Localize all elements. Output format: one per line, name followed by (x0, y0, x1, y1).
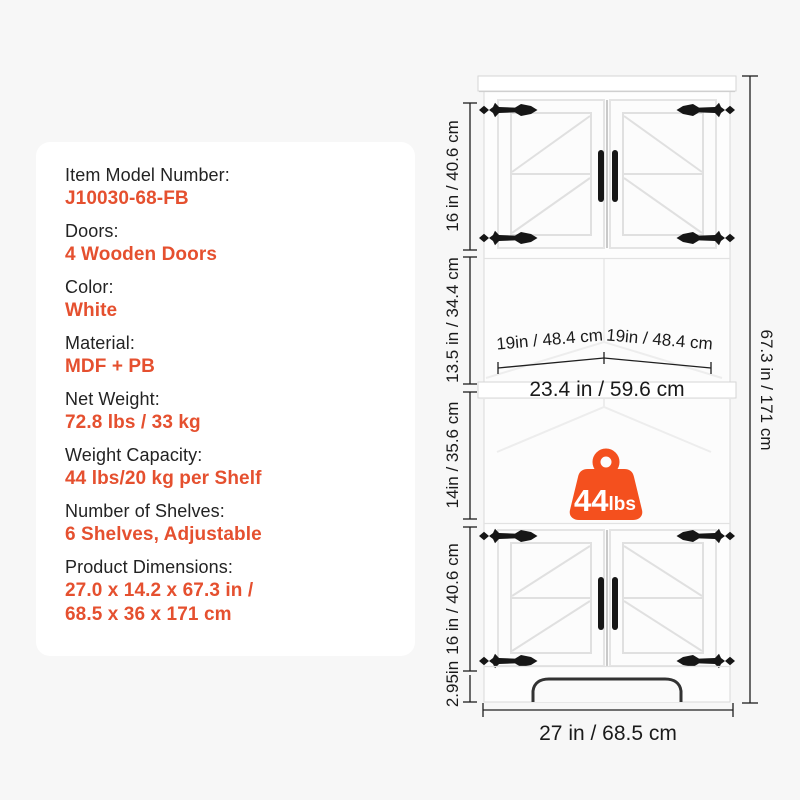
dim-label-base-height: 2.95in (443, 661, 462, 707)
spec-value: 44 lbs/20 kg per Shelf (65, 467, 395, 491)
cabinet-top-board (478, 76, 736, 91)
dim-label-overall-width: 27 in / 68.5 cm (539, 722, 677, 745)
dim-left-sections: 16 in / 40.6 cm 13.5 in / 34.4 cm 14in /… (443, 103, 477, 707)
dim-label-shelf-front-width: 23.4 in / 59.6 cm (529, 378, 684, 401)
spec-group-doors: Doors: 4 Wooden Doors (65, 219, 395, 267)
dim-total-height: 67.3 in / 171 cm (742, 76, 776, 703)
spec-card: Item Model Number: J10030-68-FB Doors: 4… (36, 142, 415, 656)
spec-group-dimensions: Product Dimensions: 27.0 x 14.2 x 67.3 i… (65, 555, 395, 627)
cabinet-dimension-diagram: 44lbs 16 in / 40.6 cm (430, 55, 800, 755)
spec-label: Doors: (65, 219, 395, 243)
spec-group-net-weight: Net Weight: 72.8 lbs / 33 kg (65, 387, 395, 435)
spec-value: White (65, 299, 395, 323)
spec-value: 4 Wooden Doors (65, 243, 395, 267)
dim-label-fourth-section: 16 in / 40.6 cm (443, 543, 462, 655)
door-handle (612, 150, 618, 202)
spec-label: Net Weight: (65, 387, 395, 411)
spec-value: 27.0 x 14.2 x 67.3 in / (65, 579, 395, 603)
spec-value: MDF + PB (65, 355, 395, 379)
lower-doors (479, 524, 735, 669)
spec-group-model: Item Model Number: J10030-68-FB (65, 163, 395, 211)
spec-group-shelves: Number of Shelves: 6 Shelves, Adjustable (65, 499, 395, 547)
dim-overall-width: 27 in / 68.5 cm (483, 703, 733, 745)
door-handle (598, 577, 604, 630)
dim-label-top-section: 16 in / 40.6 cm (443, 120, 462, 232)
spec-value: 6 Shelves, Adjustable (65, 523, 395, 547)
spec-value-line2: 68.5 x 36 x 171 cm (65, 603, 395, 627)
spec-label: Weight Capacity: (65, 443, 395, 467)
door-handle (612, 577, 618, 630)
dim-label-total-height: 67.3 in / 171 cm (757, 330, 776, 451)
product-spec-infographic: Item Model Number: J10030-68-FB Doors: 4… (0, 0, 800, 800)
spec-label: Product Dimensions: (65, 555, 395, 579)
spec-label: Material: (65, 331, 395, 355)
open-shelf-upper (486, 258, 728, 382)
upper-doors (479, 100, 735, 248)
spec-group-color: Color: White (65, 275, 395, 323)
page: { "colors": { "background": "#f7f7f7", "… (0, 0, 800, 800)
spec-label: Color: (65, 275, 395, 299)
spec-group-material: Material: MDF + PB (65, 331, 395, 379)
spec-value: J10030-68-FB (65, 187, 395, 211)
spec-label: Number of Shelves: (65, 499, 395, 523)
dim-label-second-section: 13.5 in / 34.4 cm (443, 257, 462, 383)
door-handle (598, 150, 604, 202)
spec-value: 72.8 lbs / 33 kg (65, 411, 395, 435)
spec-group-weight-capacity: Weight Capacity: 44 lbs/20 kg per Shelf (65, 443, 395, 491)
base-arch-cutout (533, 679, 681, 702)
spec-label: Item Model Number: (65, 163, 395, 187)
dim-label-third-section: 14in / 35.6 cm (443, 402, 462, 509)
